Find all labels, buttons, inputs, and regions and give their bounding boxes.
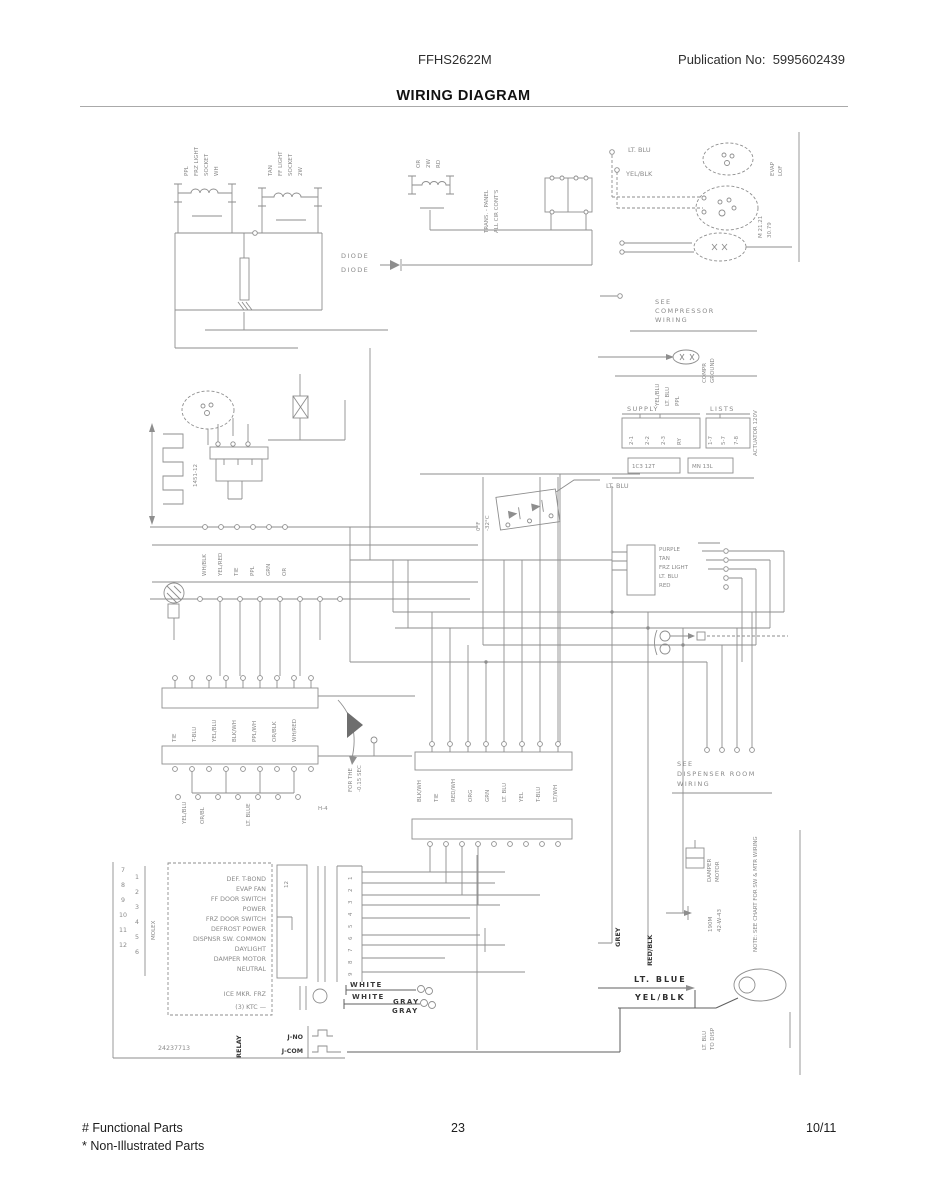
terminal-label: 1-7 bbox=[708, 436, 714, 445]
wire-color-label: GRN bbox=[485, 790, 491, 802]
pin-number: 5 bbox=[135, 934, 139, 941]
wire-color-label: TIE bbox=[234, 567, 240, 577]
socket2-label: SOCKET bbox=[288, 153, 294, 176]
terminal-label: 2-1 bbox=[629, 436, 635, 445]
pin-number: 12 bbox=[119, 942, 127, 949]
socket2-label: TAN bbox=[268, 165, 274, 177]
board-line: FF DOOR SWITCH bbox=[211, 896, 266, 903]
diode-label: DIODE bbox=[341, 252, 369, 260]
connector-label: MOLEX bbox=[151, 920, 157, 940]
control-board-block: DEF. T-BOND EVAP FAN FF DOOR SWITCH POWE… bbox=[119, 863, 327, 1052]
wire-color-label: OR/BL bbox=[200, 806, 206, 824]
connector-bars-left: TIE T-BLU YEL/BLU BLK/WH PPL/WH OR/BLK W… bbox=[162, 676, 377, 826]
heater-label: 1451-12 bbox=[193, 464, 199, 487]
wire-color-label: T-BLU bbox=[192, 727, 198, 743]
condenser-fan bbox=[694, 233, 746, 261]
strip-pin: 4 bbox=[348, 912, 354, 916]
pin-number: 6 bbox=[135, 949, 139, 956]
wire-color-label: TIE bbox=[434, 793, 440, 803]
see-compressor-note: WIRING bbox=[655, 316, 688, 324]
pin-number: 1 bbox=[135, 874, 139, 881]
damper-label: DAMPER bbox=[707, 859, 713, 882]
terminal-label: 1C3 12T bbox=[632, 464, 656, 470]
wire-color-label: LT. BLU bbox=[502, 783, 508, 802]
control-line: FRZ LIGHT bbox=[659, 565, 689, 571]
strip-pin: 2 bbox=[348, 889, 354, 893]
actuator-label: ACTUATOR 120V bbox=[753, 410, 759, 456]
lamp-socket-coils: PPL FRZ LIGHT SOCKET WH TAN FF LIGHT SOC… bbox=[174, 146, 454, 348]
wire-color-label: YEL/BLU bbox=[655, 384, 661, 407]
wire-color-label: TO DISP bbox=[710, 1027, 716, 1051]
strip-pin: 3 bbox=[348, 900, 354, 904]
wire-color-label: YEL bbox=[519, 791, 525, 803]
temp-label: 0°F bbox=[476, 522, 482, 531]
pin-number: 7 bbox=[121, 867, 125, 874]
wire-color-label: LT. BLU bbox=[665, 387, 671, 406]
wire-color-label: ORG bbox=[468, 790, 474, 802]
see-dispenser-note: WIRING bbox=[677, 780, 710, 788]
wire-color-label: RED/BLK bbox=[646, 934, 654, 966]
wire-color-label: BLK/WH bbox=[232, 720, 238, 742]
terminal-label: 5-7 bbox=[721, 436, 727, 445]
diode-label: DIODE bbox=[341, 266, 369, 274]
see-compressor-note: COMPRESSOR bbox=[655, 307, 715, 315]
contact-label: J-COM bbox=[281, 1048, 303, 1055]
wire-color-label: T-BLU bbox=[536, 787, 542, 803]
terminal-label: 2-3 bbox=[661, 436, 667, 445]
triangle-marker bbox=[347, 712, 363, 738]
wire-color-label: WHITE bbox=[352, 993, 385, 1001]
board-line: DISPNSR SW. COMMON bbox=[193, 936, 266, 943]
wire-color-label: LT. BLU bbox=[702, 1031, 708, 1050]
wire-color-label: WH/BLK bbox=[202, 554, 208, 576]
ice-maker-label: ICE MKR. FRZ bbox=[224, 991, 267, 998]
wire-color-label: LT. BLUE bbox=[246, 803, 252, 826]
relay-contacts: J-NO J-COM RELAY bbox=[235, 1008, 620, 1058]
diagram-borders bbox=[113, 132, 800, 1075]
delay-note: FOR THE bbox=[348, 767, 354, 792]
connector-label: 12 bbox=[284, 881, 290, 888]
wire-color-label: OR bbox=[282, 568, 288, 576]
wire-color-label: GREY bbox=[614, 927, 622, 947]
panel-label: TRANS. - PANEL bbox=[484, 189, 490, 234]
wire-color-label: RED/WH bbox=[451, 779, 457, 802]
wire-callouts: WHITE WHITE GRAY GRAY bbox=[344, 981, 436, 1015]
bottom-right-section: DAMPER MOTOR 190M 42-W-43 NOTE: SEE CHAR… bbox=[598, 836, 790, 1051]
fan-motor bbox=[182, 391, 234, 429]
socket2-label: FF LIGHT bbox=[278, 151, 284, 176]
auger-motor bbox=[734, 969, 786, 1001]
strip-pin: 6 bbox=[348, 936, 354, 940]
footer-functional-parts: # Functional Parts bbox=[82, 1121, 183, 1135]
socket1-label: SOCKET bbox=[204, 153, 210, 176]
socket2-label: 2W bbox=[298, 167, 304, 176]
wire-color-label: LT. BLUE bbox=[634, 975, 687, 984]
wire-color-label: GRAY bbox=[392, 1007, 419, 1015]
control-line: PURPLE bbox=[659, 547, 681, 553]
wire-color-label: WH/RED bbox=[292, 719, 298, 742]
compressor-section: SEE COMPRESSOR WIRING COMPR GROUND bbox=[598, 294, 757, 383]
terminal-label: RY bbox=[677, 438, 683, 445]
footer-page-number: 23 bbox=[451, 1121, 465, 1135]
pin-number: 11 bbox=[119, 927, 127, 934]
evaporator-fans: LT. BLU YEL/BLK EVAP LOF M 21.21 30.79 bbox=[610, 143, 792, 261]
pin-number: 8 bbox=[121, 882, 125, 889]
socket1-label: WH bbox=[214, 166, 220, 176]
see-dispenser-note: DISPENSER ROOM bbox=[677, 770, 756, 778]
ice-maker-label: (3) KTC — bbox=[235, 1004, 266, 1011]
board-line: DEFROST POWER bbox=[211, 926, 267, 933]
wire-color-label: GRAY bbox=[393, 998, 420, 1006]
fan-label: M 21.21 bbox=[758, 216, 764, 238]
dispenser-section: SEE DISPENSER ROOM WIRING bbox=[672, 612, 772, 793]
pin-number: 3 bbox=[135, 904, 139, 911]
panel-label: ALL CIR CONT'S bbox=[494, 189, 500, 233]
code-label: 42-W-43 bbox=[717, 909, 723, 932]
fan-motor bbox=[696, 186, 758, 230]
socket1-label: PPL bbox=[184, 165, 190, 176]
fan-label: EVAP bbox=[770, 161, 776, 176]
pin-number: 4 bbox=[135, 919, 139, 926]
see-compressor-note: SEE bbox=[655, 298, 672, 306]
strip-pin: 9 bbox=[348, 972, 354, 976]
socket3-label: 2W bbox=[426, 159, 432, 168]
board-line: EVAP FAN bbox=[236, 886, 266, 893]
control-box: PURPLE TAN FRZ LIGHT LT. BLU RED bbox=[612, 543, 788, 662]
contact-label: J-NO bbox=[286, 1034, 303, 1041]
pin-number: 10 bbox=[119, 912, 127, 919]
board-line: POWER bbox=[243, 906, 267, 913]
wire-bus-rows: WH/BLK YEL/RED TIE PPL GRN OR bbox=[150, 525, 478, 676]
relay-label: RELAY bbox=[235, 1035, 243, 1058]
footer-non-illustrated-parts: * Non-Illustrated Parts bbox=[82, 1139, 204, 1153]
wire-color-label: PPL bbox=[675, 395, 681, 406]
footer-date: 10/11 bbox=[806, 1121, 836, 1135]
connector-bars-center: BLK/WH TIE RED/WH ORG GRN LT. BLU YEL T-… bbox=[412, 477, 572, 905]
strip-pin: 8 bbox=[348, 960, 354, 964]
ground-label: GROUND bbox=[710, 358, 716, 383]
compressor-ground bbox=[673, 350, 699, 364]
wire-color-label: YEL/BLU bbox=[182, 802, 188, 825]
diode-and-transformer: DIODE DIODE TRANS. - PANEL ALL CIR CONT'… bbox=[341, 176, 592, 274]
strip-pin: 5 bbox=[348, 924, 354, 928]
pin-strip: 1 2 3 4 5 6 7 8 9 bbox=[337, 855, 540, 1050]
wire-color-label: YEL/RED bbox=[218, 553, 224, 577]
part-number: 24237713 bbox=[158, 1045, 190, 1052]
damper-label: MOTOR bbox=[715, 861, 721, 882]
wire-color-label: PPL/WH bbox=[252, 721, 258, 742]
wire-color-label: YEL/BLU bbox=[212, 720, 218, 743]
fan-label: 30.79 bbox=[767, 222, 773, 238]
socket1-label: FRZ LIGHT bbox=[194, 146, 200, 176]
board-line: DEF. T-BOND bbox=[227, 876, 267, 883]
wire-color-label: PPL bbox=[250, 565, 256, 576]
terminal-label: H-4 bbox=[318, 806, 328, 812]
board-line: NEUTRAL bbox=[237, 966, 267, 973]
control-line: LT. BLU bbox=[659, 574, 678, 580]
delay-note: -0.15 SEC bbox=[357, 765, 363, 792]
terminal-label: 2-2 bbox=[645, 436, 651, 445]
fan-motor bbox=[703, 143, 753, 175]
manual-page: FFHS2622M Publication No: 5995602439 WIR… bbox=[0, 0, 927, 1200]
supply-label: SUPPLY bbox=[627, 405, 659, 413]
wiring-note: NOTE: SEE CHART FOR SW & MTR WIRING bbox=[753, 836, 759, 952]
board-line: DAYLIGHT bbox=[235, 946, 266, 953]
board-line: DAMPER MOTOR bbox=[214, 956, 267, 963]
terminal-label: 7-8 bbox=[734, 436, 740, 445]
defrost-heater-and-timer: 1451-12 bbox=[149, 374, 345, 525]
pin-number: 9 bbox=[121, 897, 125, 904]
wire-color-label: WHITE bbox=[350, 981, 383, 989]
fan-label: LOF bbox=[778, 166, 784, 176]
code-label: 190M bbox=[708, 917, 714, 932]
wire-color-label: TIE bbox=[172, 733, 178, 743]
wire-color-label: YEL/BLK bbox=[634, 993, 686, 1002]
see-dispenser-note: SEE bbox=[677, 760, 694, 768]
wire-color-label: LT. BLU bbox=[628, 146, 651, 154]
transformer-box bbox=[545, 178, 592, 212]
wire-color-label: LT. BLU bbox=[606, 482, 629, 490]
control-line: RED bbox=[659, 583, 671, 589]
terminal-label: MN 13L bbox=[692, 464, 714, 470]
wire-color-label: YEL/BLK bbox=[625, 170, 653, 178]
wire-color-label: GRN bbox=[266, 564, 272, 576]
lists-label: LISTS bbox=[710, 405, 735, 413]
strip-pin: 7 bbox=[348, 948, 354, 952]
socket3-label: OR bbox=[416, 160, 422, 168]
temp-label: -32°C bbox=[485, 515, 491, 531]
pin-number: 2 bbox=[135, 889, 139, 896]
strip-pin: 1 bbox=[348, 877, 354, 881]
wiring-diagram-canvas: PPL FRZ LIGHT SOCKET WH TAN FF LIGHT SOC… bbox=[0, 0, 927, 1200]
socket3-label: RD bbox=[436, 160, 442, 168]
board-line: FRZ DOOR SWITCH bbox=[206, 916, 266, 923]
wire-color-label: BLK/WH bbox=[417, 780, 423, 802]
wire-color-label: OR/BLK bbox=[272, 721, 278, 742]
wire-color-label: LT/WH bbox=[553, 785, 559, 802]
control-line: TAN bbox=[658, 556, 670, 562]
ground-label: COMPR bbox=[702, 363, 708, 383]
